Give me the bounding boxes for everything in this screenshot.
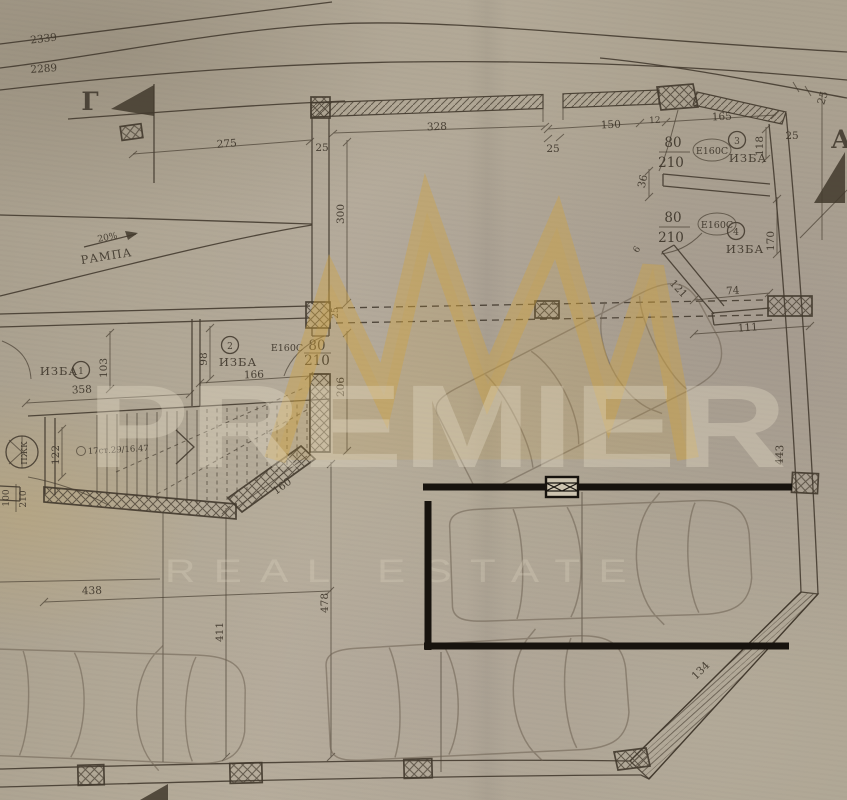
dim-6: 6 [632, 244, 644, 255]
floor-plan-drawing: 2339 2289 25 Г 275 А 20% РАМПА [0, 0, 847, 800]
door-height-3: 210 [658, 155, 684, 171]
room-number-2: 2 [227, 342, 233, 352]
dim-111: 111 [737, 321, 758, 334]
bottom-wall [0, 748, 650, 800]
door-width-4: 80 [664, 210, 681, 226]
section-flag-bottom-icon [140, 784, 168, 800]
room-number-4: 4 [733, 228, 739, 238]
ramp-label: РАМПА [80, 245, 134, 267]
column-marker-on-highlight [546, 477, 578, 497]
dim-74: 74 [726, 285, 740, 298]
section-letter-g: Г [81, 87, 98, 116]
section-flag-icon [814, 152, 845, 203]
dim-25-door: 25 [546, 143, 559, 155]
dim-25-street: 25 [815, 90, 831, 106]
column-hatched [404, 759, 432, 779]
dim-134: 134 [690, 659, 713, 682]
dim-118: 118 [754, 136, 766, 156]
column-hatched [791, 472, 818, 493]
door-width-3: 80 [664, 135, 681, 151]
car-bottom-left [0, 638, 248, 773]
dim-12: 12 [649, 116, 661, 127]
dim-36: 36 [636, 173, 651, 189]
dim-25-wall: 25 [315, 142, 328, 154]
dim-150: 150 [601, 118, 622, 131]
column-hatched [768, 296, 812, 316]
contour-label-upper: 2339 [30, 31, 58, 46]
column-hatched [614, 748, 650, 770]
door1-width: 100 [2, 489, 12, 506]
dim-300: 300 [335, 204, 347, 224]
door-height-4: 210 [658, 230, 684, 246]
door1-height: 210 [19, 490, 29, 507]
dim-411: 411 [214, 622, 226, 642]
room-number-1: 1 [78, 367, 84, 377]
dim-122: 122 [50, 445, 62, 465]
room-label-izba-4: ИЗБА [726, 242, 764, 256]
dim-165: 165 [712, 110, 733, 123]
column-hatched [120, 124, 143, 141]
column-hatched [78, 765, 105, 786]
dim-170: 170 [765, 231, 777, 251]
dim-478: 478 [319, 593, 331, 613]
door-fire-rating-3: Е160С [696, 146, 728, 157]
shaft-label: ПЖК [20, 441, 30, 465]
top-wall: 328 25 25 150 12 165 [311, 84, 786, 155]
section-marker-left: Г 275 [68, 84, 345, 183]
watermark: PREMIER REAL ESTATE [87, 212, 787, 589]
watermark-brand: PREMIER [87, 361, 787, 493]
column-hatched [230, 763, 263, 784]
dim-328: 328 [427, 121, 447, 134]
column-corner [657, 84, 698, 110]
room-number-3: 3 [734, 137, 740, 147]
contour-label-lower: 2289 [30, 62, 58, 76]
ramp-slope-label: 20% [97, 231, 119, 245]
ramp-area: 20% РАМПА [0, 215, 312, 296]
blueprint-sheet: 2339 2289 25 Г 275 А 20% РАМПА [0, 0, 847, 800]
section-marker-right: А [800, 125, 847, 238]
dim-275: 275 [216, 137, 237, 150]
watermark-subtitle: REAL ESTATE [165, 553, 645, 589]
column-hatched [311, 97, 330, 118]
slope-arrow-icon [125, 231, 138, 240]
section-letter-a: А [831, 125, 847, 154]
dim-438: 438 [82, 585, 102, 598]
section-flag-icon [111, 85, 154, 116]
